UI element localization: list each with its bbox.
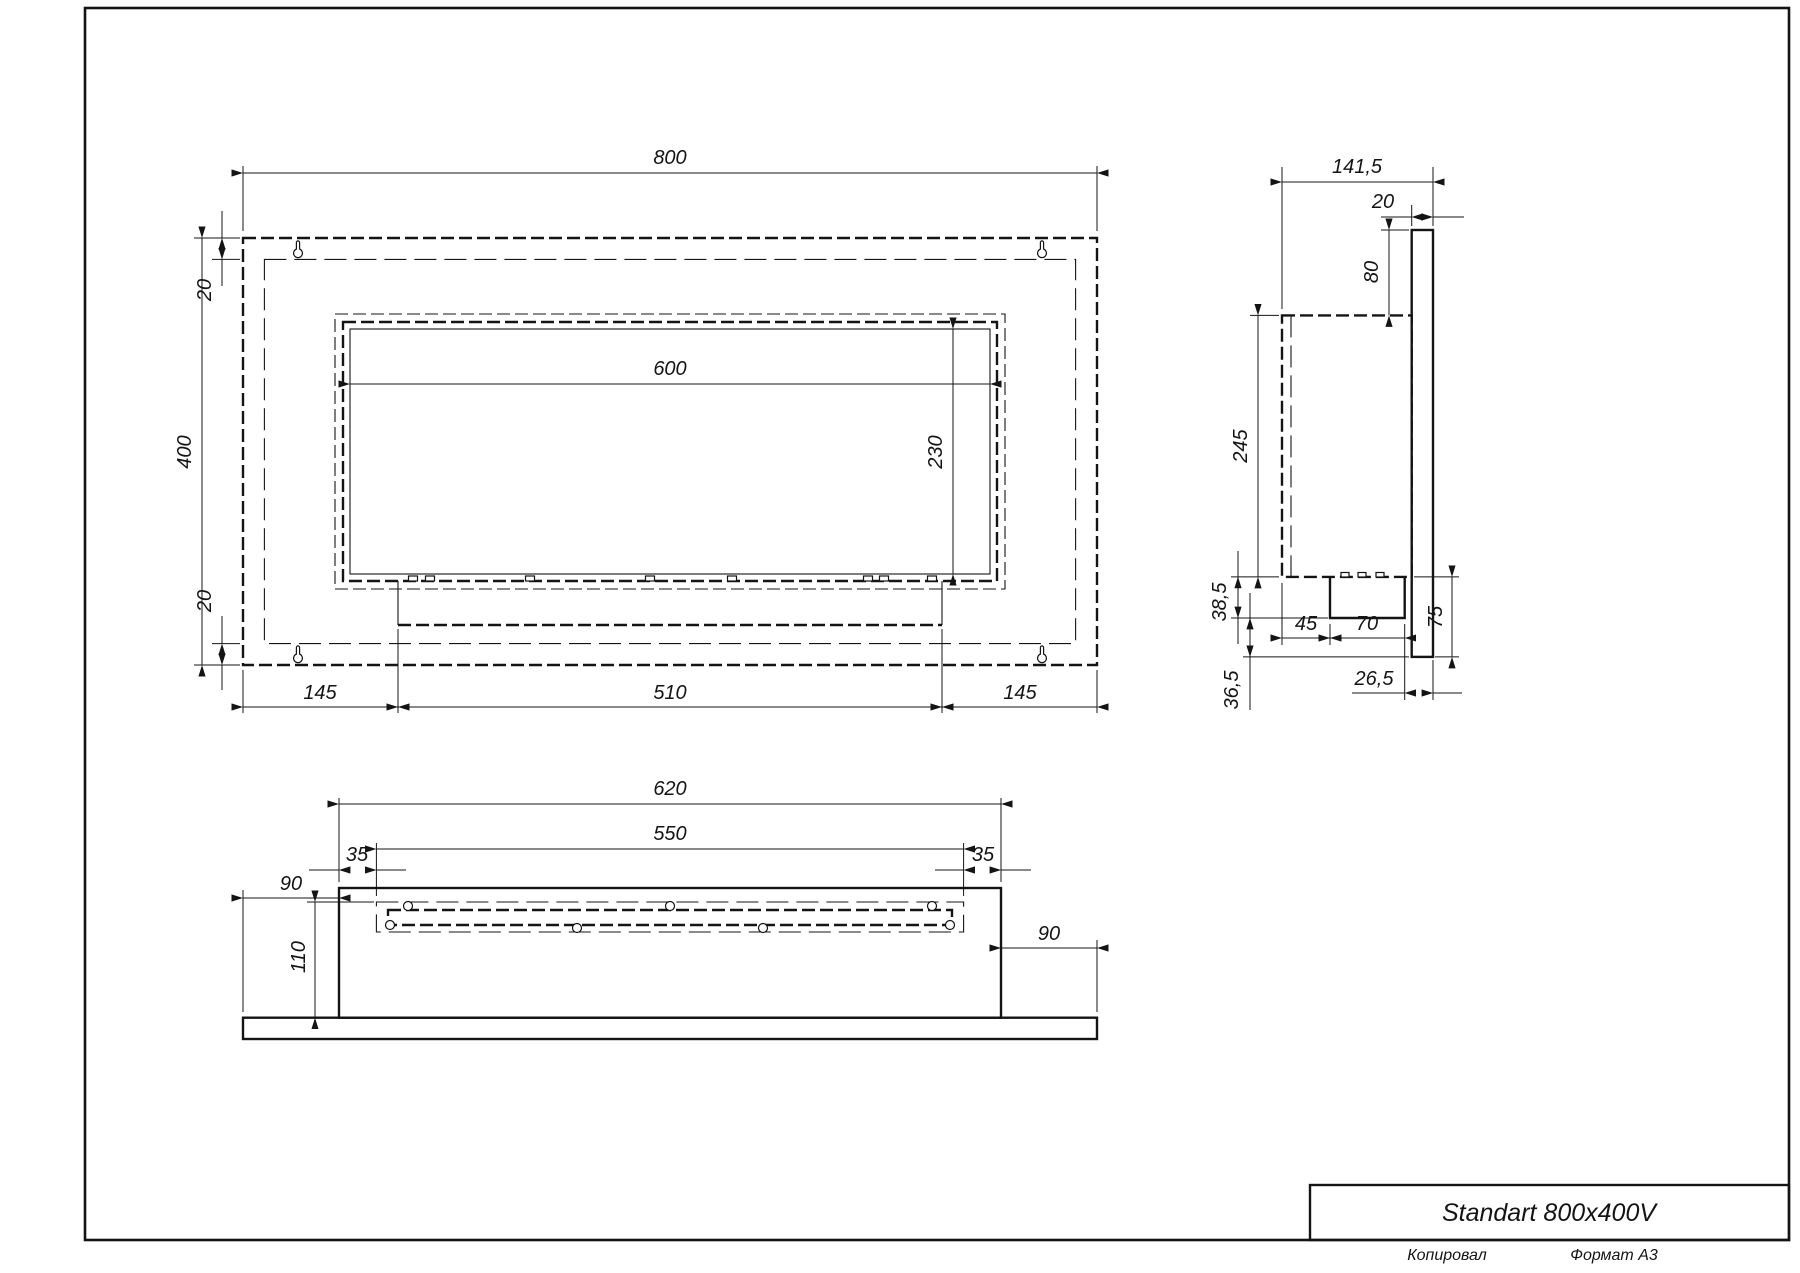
dim-front-height: 400: [174, 435, 196, 468]
dim-tray-width: 510: [653, 682, 686, 704]
dim-inner-depth: 110: [288, 941, 310, 973]
bottom-hidden-tray: [388, 910, 952, 925]
dim-inner-width: 550: [653, 823, 686, 845]
dim-side-depth: 141,5: [1332, 156, 1383, 178]
side-tabs: [1341, 573, 1384, 578]
front-dimensions: 800 400 20 20 600 230: [174, 147, 1097, 713]
keyhole-icon: [294, 646, 303, 663]
technical-drawing: 800 400 20 20 600 230: [0, 0, 1800, 1273]
hole: [573, 924, 582, 933]
dim-inset-right: 35: [972, 844, 995, 866]
side-view: 141,5 20 80 245 38,5 45: [1209, 156, 1464, 710]
dim-plate-thickness: 20: [1371, 191, 1394, 213]
front-inset-hidden-line: [264, 259, 1075, 643]
side-burner-box: [1330, 577, 1405, 618]
hole: [404, 902, 413, 911]
dim-front-width: 800: [653, 147, 686, 169]
dim-front-margin-top: 20: [194, 279, 216, 302]
format-label: Формат A3: [1570, 1247, 1658, 1264]
dim-offset-right: 145: [1003, 682, 1037, 704]
dim-inset-left: 35: [346, 844, 369, 866]
opening-hidden-outer: [335, 314, 1005, 589]
dim-overhang-left: 90: [280, 873, 302, 895]
copied-label: Копировал: [1407, 1247, 1487, 1264]
title-block: Standart 800x400V Копировал Формат A3: [1310, 1185, 1789, 1264]
keyhole-icon: [294, 241, 303, 258]
drawing-sheet: 800 400 20 20 600 230: [0, 0, 1800, 1273]
dim-front-margin-bottom: 20: [194, 590, 216, 613]
side-backplate: [1412, 230, 1433, 657]
dim-bottom-gap: 36,5: [1221, 670, 1243, 710]
hole: [386, 921, 395, 930]
dim-box-offset: 45: [1295, 613, 1318, 635]
dim-base-height: 38,5: [1209, 582, 1231, 622]
dim-opening-width: 600: [653, 358, 686, 380]
dim-offset-left: 145: [303, 682, 337, 704]
hole: [666, 902, 675, 911]
drawing-title: Standart 800x400V: [1442, 1199, 1658, 1227]
keyhole-icon: [1038, 646, 1047, 663]
page-frame: [85, 8, 1789, 1240]
mounting-holes: [386, 902, 955, 933]
keyhole-icon: [1038, 241, 1047, 258]
front-view: 800 400 20 20 600 230: [174, 147, 1097, 713]
hole: [946, 921, 955, 930]
dim-top-drop: 80: [1361, 261, 1383, 283]
hole: [759, 924, 768, 933]
side-dimensions: 141,5 20 80 245 38,5 45: [1209, 156, 1464, 710]
front-outline: [243, 238, 1097, 665]
dim-box-width: 70: [1356, 613, 1378, 635]
dim-bottom-width: 620: [653, 778, 686, 800]
bottom-backplate: [243, 1018, 1097, 1039]
dim-overhang-right: 90: [1038, 923, 1060, 945]
dim-plate-lower: 75: [1425, 605, 1447, 628]
dim-rear-gap: 26,5: [1354, 668, 1395, 690]
dim-body-height: 245: [1230, 428, 1252, 463]
dim-opening-height: 230: [925, 435, 947, 469]
bottom-view: 620 550 35 35 90 90 110: [243, 778, 1097, 1039]
side-body: [1282, 315, 1412, 577]
hole: [928, 902, 937, 911]
bottom-dimensions: 620 550 35 35 90 90 110: [243, 778, 1097, 1018]
